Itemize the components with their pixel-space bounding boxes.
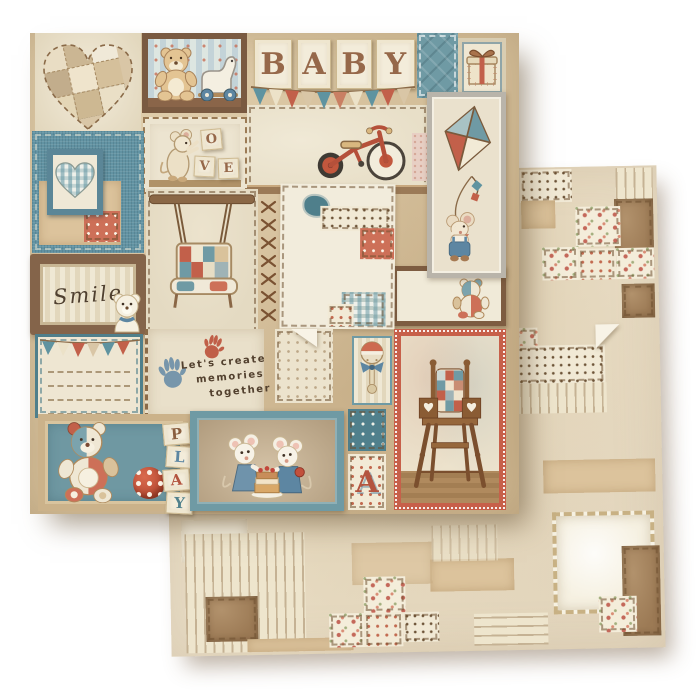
swing-card (146, 189, 258, 335)
patch-brown (206, 596, 259, 642)
kite-mouse-card (427, 92, 506, 278)
patch-floral (575, 206, 621, 247)
gingham-heart-icon (53, 160, 97, 202)
teal-quilt-patch (417, 33, 458, 98)
patchwork-heart-icon (38, 39, 138, 135)
floral-mini-patch (328, 304, 354, 326)
patch-polka (519, 169, 572, 203)
high-chair-card (394, 329, 506, 510)
gift-card (458, 38, 506, 97)
patch-polka (509, 344, 606, 384)
bunting-lined-card (35, 334, 143, 418)
love-block-e: E (218, 158, 240, 180)
patch-stripes (431, 524, 498, 561)
block-letter: V (199, 159, 210, 175)
patch-tan (521, 200, 556, 229)
patch-red-polka (578, 248, 617, 280)
front-sheet: B A B Y (30, 33, 519, 514)
patch-polka (403, 612, 440, 643)
block-letter: E (223, 161, 233, 176)
gingham-heart-frame (47, 149, 103, 215)
patch-floral (542, 247, 579, 281)
writing-line (48, 385, 130, 387)
patch-floral (616, 247, 655, 279)
block-letter: B (260, 47, 285, 82)
high-chair-icon (407, 349, 493, 501)
rattle-card (352, 336, 392, 405)
journal-card (279, 184, 395, 330)
block-letter: P (170, 425, 183, 444)
love-blocks-card: O V E (143, 117, 247, 194)
tricycle-card (247, 105, 428, 194)
smile-bear-icon (110, 291, 144, 333)
baby-block-1: B (254, 39, 292, 89)
memories-card: Let's create memories together (145, 329, 264, 419)
baby-block-2: A (297, 39, 331, 89)
love-block-o: O (200, 128, 223, 151)
memories-text: Let's create memories together (180, 353, 271, 402)
red-polka-patch (84, 211, 120, 242)
play-teddy-card: P L A Y (38, 414, 190, 511)
writing-line (48, 399, 130, 401)
letter-a: A (355, 465, 378, 500)
toy-shelf-card (142, 33, 247, 113)
ball-dots (133, 467, 165, 499)
red-polka-patch (360, 228, 394, 259)
tricycle-icon (305, 113, 425, 187)
bunting-banner-icon (40, 337, 140, 361)
patch-stripes (512, 382, 608, 414)
mice-with-cake-icon (197, 418, 337, 504)
gift-box-icon (463, 43, 501, 91)
teal-polka-patch (348, 409, 386, 451)
play-block-p: P (162, 422, 191, 446)
love-block-v: V (193, 155, 215, 177)
patch-floral (599, 596, 638, 633)
block-letter: L (174, 448, 186, 467)
memories-line-3: together (209, 383, 272, 399)
patch-stripes (474, 612, 549, 645)
swing-icon (146, 189, 258, 333)
polka-ball (133, 467, 165, 499)
patchwork-heart-card (35, 33, 141, 145)
product-photo: B A B Y (0, 0, 700, 700)
mouse-with-kite-icon (432, 97, 501, 273)
patch-floral (329, 613, 365, 648)
patch-tan (430, 558, 515, 592)
folded-corner (291, 329, 317, 347)
teddy-in-frame-icon (449, 275, 493, 319)
writing-line (48, 371, 130, 373)
patch-floral (363, 576, 406, 613)
patch-tan (543, 458, 656, 493)
baby-block-4: Y (376, 39, 415, 89)
memories-line-2: memories (196, 368, 271, 385)
patchwork-teddy-icon (51, 417, 133, 503)
play-block-a: A (162, 468, 190, 492)
teddy-and-pull-toy-icon (150, 39, 240, 101)
block-letter: Y (174, 494, 186, 513)
block-letter: A (170, 471, 183, 490)
polka-folded-card (275, 329, 333, 403)
patch-stripes (615, 167, 653, 201)
block-letter: B (341, 47, 366, 82)
block-letter: A (302, 47, 325, 82)
rattle-icon (354, 338, 390, 402)
letter-a-card: A (348, 454, 386, 510)
cross-stitches-icon (259, 198, 279, 334)
mice-cake-card (190, 411, 344, 511)
folded-corner (595, 324, 619, 348)
baby-block-3: B (336, 39, 372, 89)
bunting-banner-icon (249, 83, 417, 113)
patch-brown (622, 283, 656, 318)
block-letter: Y (385, 47, 406, 82)
block-letter: O (205, 132, 218, 148)
patch-red-polka (364, 612, 404, 647)
denim-patch-block (32, 131, 144, 253)
